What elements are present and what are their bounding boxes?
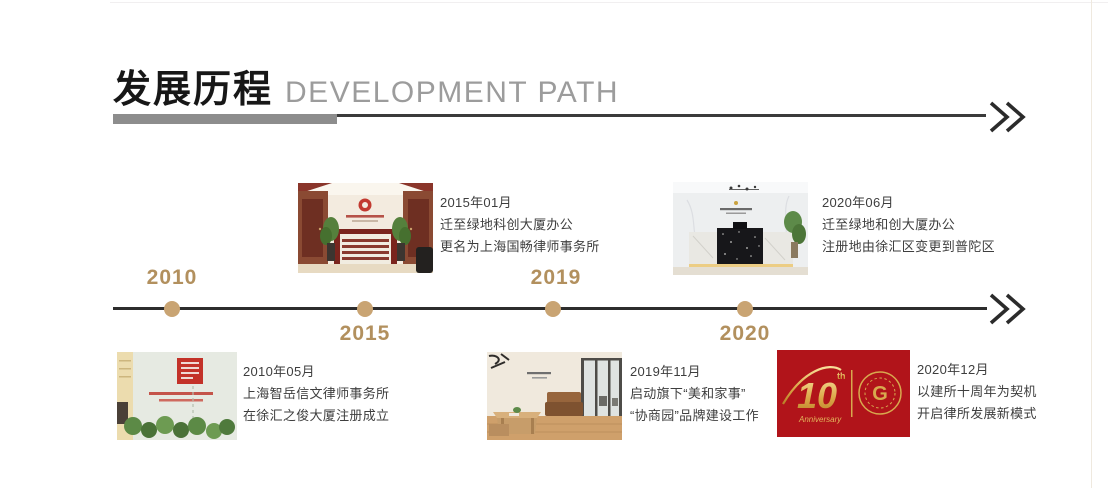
milestone-line: 在徐汇之俊大厦注册成立	[243, 405, 389, 427]
anniversary-superscript: th	[837, 371, 846, 381]
office-reception-2020-photo	[673, 182, 808, 275]
seal-letter: G	[872, 383, 888, 405]
year-label-2010: 2010	[127, 266, 217, 290]
milestone-date: 2020年06月	[822, 192, 995, 214]
milestone-line: “协商园”品牌建设工作	[630, 405, 759, 427]
founding-office-2010-photo	[117, 352, 237, 440]
year-label-2019: 2019	[511, 266, 601, 290]
year-label-2015: 2015	[320, 322, 410, 346]
page-title-en: DEVELOPMENT PATH	[285, 76, 619, 110]
wood-bench	[489, 424, 509, 436]
page-top-divider	[110, 2, 1108, 3]
milestone-2020-06: 2020年06月 迁至绿地和创大厦办公 注册地由徐汇区变更到普陀区	[822, 192, 995, 258]
milestone-date: 2010年05月	[243, 361, 389, 383]
tenth-anniversary-banner: 10 th Anniversary G	[777, 350, 910, 437]
sofa	[545, 392, 583, 416]
office-interior-2019-photo	[487, 352, 622, 440]
double-chevron-right-icon	[987, 98, 1027, 136]
timeline-dot-2015	[357, 301, 373, 317]
milestone-2020-12: 2020年12月 以建所十周年为契机 开启律所发展新模式	[917, 359, 1037, 425]
milestone-line: 注册地由徐汇区变更到普陀区	[822, 236, 995, 258]
milestone-line: 迁至绿地科创大厦办公	[440, 214, 600, 236]
year-label-2020: 2020	[700, 322, 790, 346]
page-right-divider	[1091, 0, 1092, 488]
milestone-2010: 2010年05月 上海智岳信文律师事务所 在徐汇之俊大厦注册成立	[243, 361, 389, 427]
anniversary-number: 10	[797, 375, 837, 416]
development-path-section: 发展历程 DEVELOPMENT PATH 2010 2015 2019 202…	[0, 0, 1108, 488]
office-reception-2015-photo	[298, 183, 433, 273]
double-chevron-right-icon	[987, 290, 1027, 328]
timeline-dot-2020	[737, 301, 753, 317]
milestone-line: 上海智岳信文律师事务所	[243, 383, 389, 405]
milestone-line: 迁至绿地和创大厦办公	[822, 214, 995, 236]
milestone-2019: 2019年11月 启动旗下“美和家事” “协商园”品牌建设工作	[630, 361, 759, 427]
milestone-line: 启动旗下“美和家事”	[630, 383, 759, 405]
timeline-dot-2019	[545, 301, 561, 317]
milestone-date: 2015年01月	[440, 192, 600, 214]
title-underline	[113, 114, 986, 124]
milestone-2015: 2015年01月 迁至绿地科创大厦办公 更名为上海国畅律师事务所	[440, 192, 600, 258]
timeline-dot-2010	[164, 301, 180, 317]
milestone-line: 更名为上海国畅律师事务所	[440, 236, 600, 258]
milestone-line: 开启律所发展新模式	[917, 403, 1037, 425]
reception-desk	[334, 229, 397, 264]
milestone-date: 2020年12月	[917, 359, 1037, 381]
lobby-chair	[416, 247, 433, 273]
red-seal-logo	[177, 358, 203, 384]
page-title-zh: 发展历程	[113, 58, 273, 113]
section-header: 发展历程 DEVELOPMENT PATH	[113, 58, 619, 113]
title-underline-thin-line	[337, 114, 986, 117]
anniversary-caption: Anniversary	[798, 415, 842, 424]
title-underline-thick-bar	[113, 114, 337, 124]
milestone-line: 以建所十周年为契机	[917, 381, 1037, 403]
milestone-date: 2019年11月	[630, 361, 759, 383]
glass-partition	[581, 358, 622, 420]
